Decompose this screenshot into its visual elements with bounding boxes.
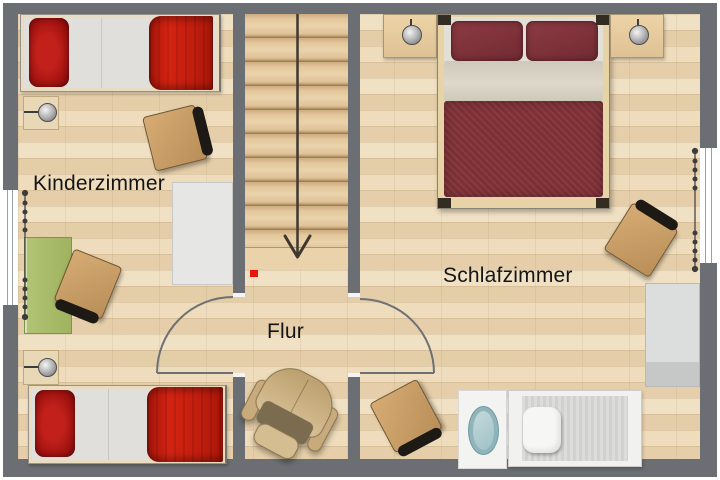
left-window-curtain bbox=[22, 190, 27, 319]
kinderzimmer-door[interactable] bbox=[157, 297, 233, 373]
flur-label: Flur bbox=[267, 320, 304, 344]
door-swing-arc bbox=[360, 299, 434, 373]
stair-direction-arrow bbox=[285, 14, 310, 257]
schlafzimmer-door[interactable] bbox=[360, 299, 434, 373]
schlafzimmer-label: Schlafzimmer bbox=[443, 264, 573, 288]
door-swing-arc bbox=[157, 297, 233, 373]
kinderzimmer-label: Kinderzimmer bbox=[33, 172, 165, 196]
right-window-curtain bbox=[692, 148, 697, 271]
floor-plan: Kinderzimmer Flur Schlafzimmer bbox=[0, 0, 720, 480]
plan-overlay bbox=[0, 0, 720, 480]
